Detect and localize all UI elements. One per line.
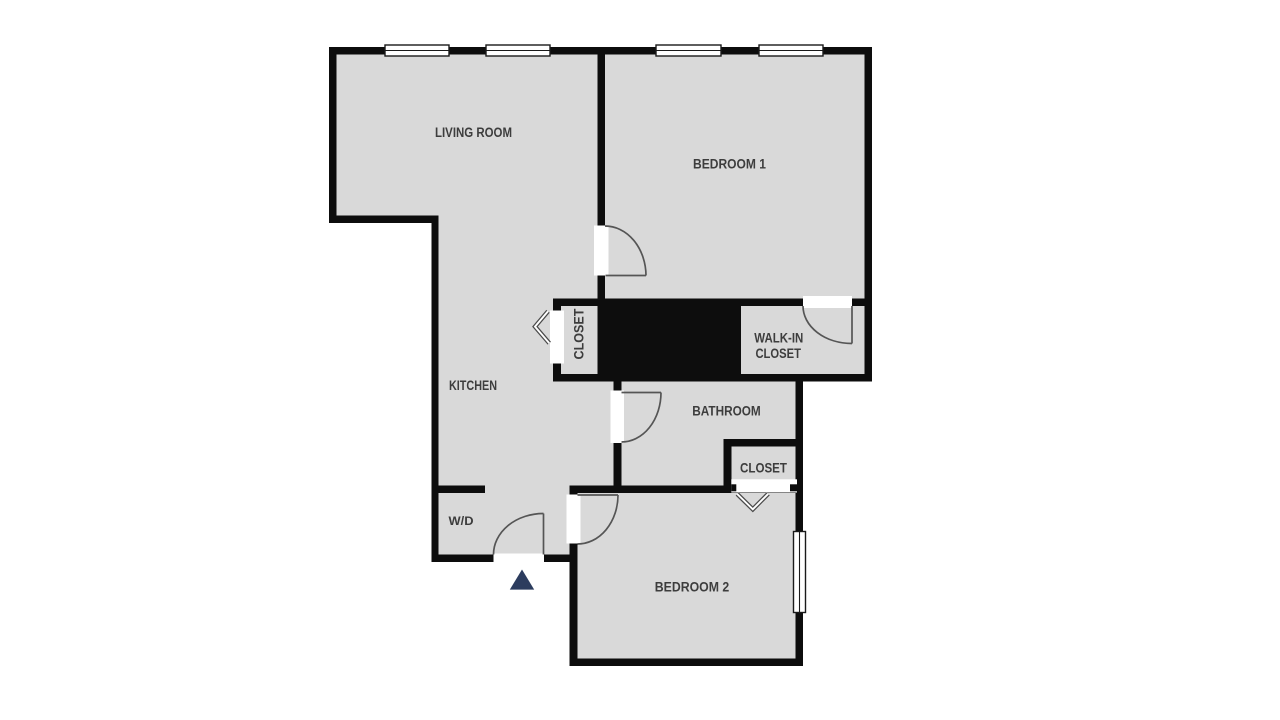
svg-text:CLOSET: CLOSET (755, 346, 801, 361)
svg-text:LIVING ROOM: LIVING ROOM (435, 125, 512, 140)
svg-text:BEDROOM 2: BEDROOM 2 (655, 580, 730, 595)
svg-text:BEDROOM 1: BEDROOM 1 (693, 157, 766, 172)
svg-text:CLOSET: CLOSET (740, 461, 788, 476)
svg-text:WALK-IN: WALK-IN (754, 331, 803, 346)
svg-text:KITCHEN: KITCHEN (449, 378, 497, 393)
svg-text:W/D: W/D (449, 514, 474, 528)
svg-text:BATHROOM: BATHROOM (692, 404, 761, 419)
svg-text:CLOSET: CLOSET (572, 308, 587, 360)
